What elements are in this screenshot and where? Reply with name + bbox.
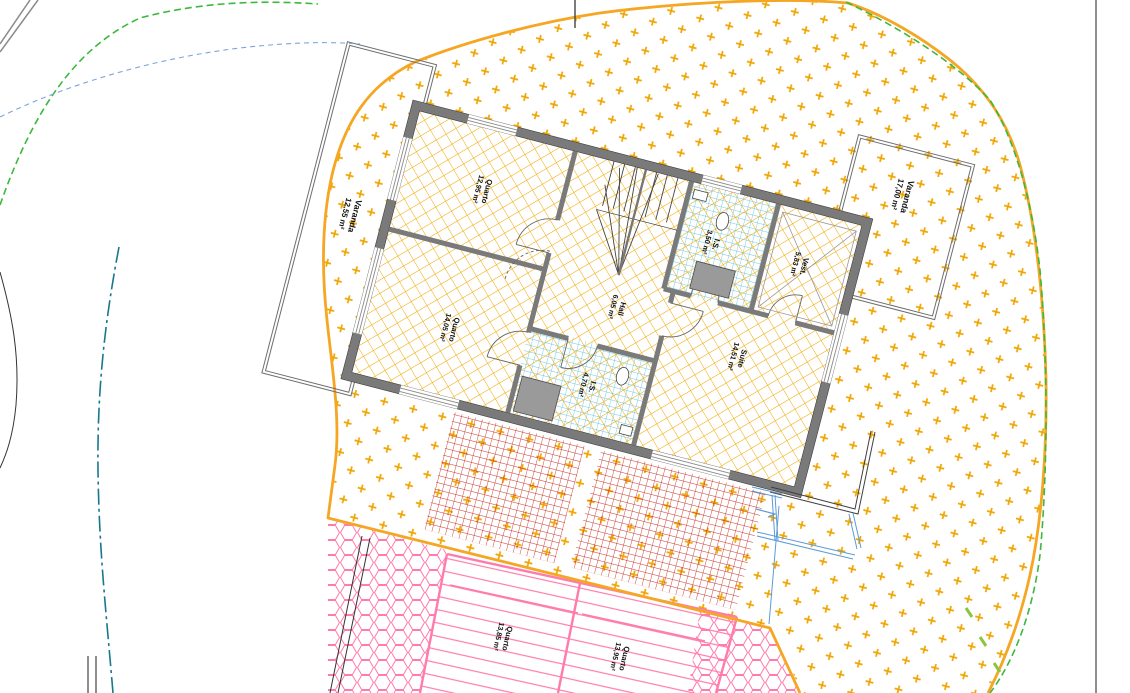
black-contour-left (0, 272, 17, 468)
green-boundary-top-left (0, 2, 318, 205)
floor-plan-canvas: Quarto 13,85 m² Quarto 13,95 m² (0, 0, 1130, 693)
road-edge-top-left (0, 0, 38, 52)
site-plan-drawing: Quarto 13,85 m² Quarto 13,95 m² (0, 0, 1130, 693)
teal-dashdot-contour (98, 247, 119, 693)
blue-dashed-contour (0, 43, 360, 117)
